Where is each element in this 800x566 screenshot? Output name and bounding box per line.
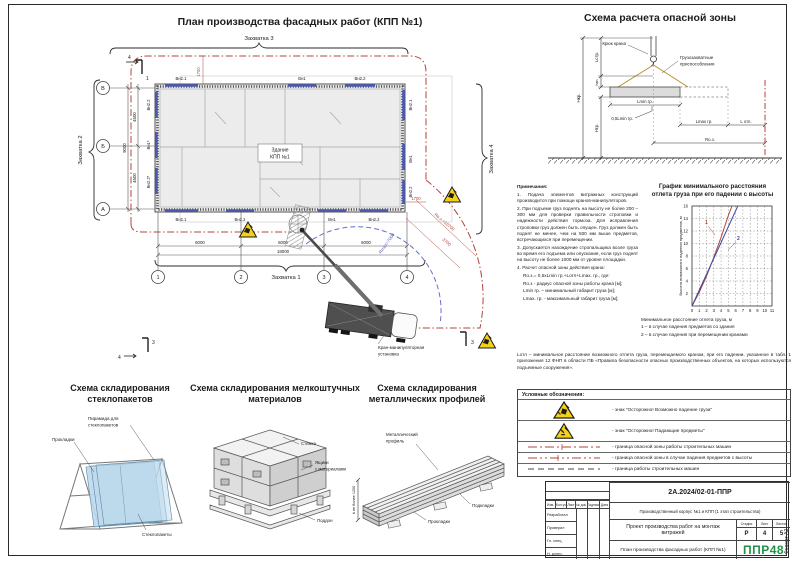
crane-label-1: Кран-манипуляторная [378,345,425,350]
machine-work-boundary-line-symbol [518,465,610,473]
svg-text:6: 6 [686,266,689,271]
win-label: Вн1 [298,76,306,81]
legend-text: - граница работы строительных машин [610,467,790,472]
dim-4500a: 4500 [132,112,137,122]
win-label: Вн2.2* [146,175,151,188]
axis-letter: Б [101,144,105,150]
pyramid-label-1: Пирамида для [88,416,119,421]
company-logo: ППР48 [736,540,790,559]
notes-block: Примечания: 1. Подача элементов витражны… [517,184,638,304]
row-glspec: Гл. спец. [546,534,576,547]
graph-legend-2: 2 – в случае падения при перемещении кра… [641,332,793,338]
glass-storage-scheme: Пирамида для стеклопакетов Прокладки Сте… [50,412,190,547]
svg-text:2: 2 [705,308,708,313]
pyramid-label-2: стеклопакетов [88,423,119,428]
building: Здание КПП №1 [155,84,405,212]
svg-text:3: 3 [713,308,716,313]
dim-6000c: 6000 [361,240,371,245]
glass-panes-label: Стеклопакеты [142,532,172,537]
axis-number: 4 [405,275,408,281]
mark-3-bottom: 3 [152,340,155,346]
rigging-label-1: Грузозахватные [680,55,714,60]
boxes-label-1: Ящики [315,460,329,465]
supports-label: Подкладки [472,503,495,508]
axis-number: 2 [239,275,242,281]
building-label-2: КПП №1 [270,155,290,161]
warning-falling-load-icon [444,187,461,202]
zone4-label: Захватка 4 [489,144,495,174]
hook-leader [628,45,648,54]
legend-text: - знак "Осторожно! Падающие предметы" [610,429,790,434]
note-item: 2. При подъеме груз поднять на высоту не… [517,206,638,244]
legend-row: - граница опасной зоны в случае падения … [518,452,790,463]
note-item: 1. Подача элементов витражных конструкци… [517,192,638,205]
note-item: 4. Расчет опасной зоны действия крана: [517,265,638,271]
height-dim [356,478,360,522]
danger-zone-scheme: Нкр. Lстр. hзп. Нгр. Lmin гр. 0,5Lmin гр… [540,28,790,183]
axis-number: 3 [322,275,325,281]
boxes-label-2: с материалами [315,467,347,472]
profile-label-1: Металлический [386,432,418,437]
col-koluch: Кол.уч [555,500,566,508]
axis-letter: А [101,207,105,213]
pallet-label: Поддон [317,518,333,523]
svg-text:16: 16 [683,204,688,209]
danger-zone-machines-line-symbol [518,443,610,451]
dim-roz: Rо.з. [705,137,715,142]
svg-text:8: 8 [686,254,689,259]
win-label: Вн2.1 [408,99,413,111]
note-formula: Rо.з - радиус опасной зоны работы крана … [517,281,638,287]
sheets-label: Листов [772,519,790,527]
svg-text:8: 8 [749,308,752,313]
rigging-leader [662,61,678,73]
legend-text: - граница опасной зоны работы строительн… [610,445,790,450]
col-doc: № док. [575,500,587,508]
small-storage-title: Схема складирования мелкоштучных материа… [190,383,360,406]
sling-line [654,65,689,87]
sheet-value: 4 [756,527,772,540]
load-ghost [680,87,728,97]
curve-label-2: 2 [737,236,740,242]
win-label: Вн2.2 [355,76,367,81]
dim-hzp: hзп. [595,79,599,86]
site-plan: Захватка 3 Захватка 1 Захватка 2 Захватк… [30,32,520,382]
win-label: Вн2.1 [176,217,188,222]
load-block [610,87,680,97]
legend-row: - знак "Осторожно! Возможно падение груз… [518,399,790,420]
building-label-1: Здание [271,148,288,154]
small-materials-scheme: Стяжка Ящики с материалами Поддон [195,428,350,546]
axis-letter: В [101,86,105,92]
row-nkontr: Н. контр. [546,547,576,559]
svg-text:6: 6 [734,308,737,313]
object-name: Производственный корпус №1 и КПП (1 этап… [609,502,790,519]
dim-6000a: 6000 [195,240,205,245]
dim-1700-top: 1700 [196,67,201,77]
fall-distance-graph: 01234567891011246810121416 1 2 Высота во… [638,198,795,318]
sheet-name: План производства фасадных работ (КПП №1… [609,540,736,559]
lotl-note: Lотл – минимальное расстояние возможного… [517,352,791,371]
warning-falling-load-icon [240,222,257,237]
format-note: Формат А2 [784,529,790,554]
plot-area: 01234567891011246810121416 [683,204,775,313]
legend-heading: Условные обозначения: [518,390,790,399]
dim-lotl: L отл. [740,119,751,124]
dim-4500b: 4500 [132,173,137,183]
row-proveril: Проверил [546,521,576,534]
mark-4-top: 4 [128,55,131,61]
warning-falling-load-icon [479,333,496,348]
col-podpis: Подпись [587,500,599,508]
dim-9000: 9000 [122,143,127,153]
vertical-dims [581,36,603,160]
curve-label-1: 1 [705,220,708,226]
plan-title: План производства фасадных работ (КПП №1… [125,16,475,28]
win-label: Вн2.2 [235,217,247,222]
svg-text:9: 9 [756,308,759,313]
sheet-label: Лист [756,519,772,527]
dim-lmax: Lmax гр. [696,119,713,124]
spacers-label: Прокладки [52,437,75,442]
crane-radius-label: Rmax=7000 [378,232,396,255]
mark-3-right: 3 [471,340,474,346]
svg-text:4: 4 [686,279,689,284]
col-izm: Изм. [546,500,555,508]
note-formula: Rо.з.= 0,5xLmin гр.+Lотл+Lmax. гр., где: [517,273,638,279]
danger-zone-falling-line-symbol [518,454,610,462]
win-label: Вн1* [146,140,151,149]
dim-half-lmin: 0,5Lmin гр. [611,116,633,121]
mark-4-bottom: 4 [118,355,121,361]
zone1-label: Захватка 1 [271,275,300,281]
graph-xlabel: Минимальное расстояние отлета груза, м [641,317,793,323]
dim-1700-right: 1700 [411,196,421,201]
warning-falling-objects-icon [518,422,610,440]
dim-lstr: Lстр. [594,52,599,63]
col-list: Лист [566,500,575,508]
win-label: Вн2.2 [369,217,381,222]
mark-1-top: 1 [146,76,149,82]
metal-profiles-scheme: h не более 1200 Металлический профиль По… [346,418,510,545]
glass-storage-title: Схема складирования стеклопакетов [40,383,200,406]
project-name: Проект производства работ на монтаж витр… [609,519,736,540]
svg-text:10: 10 [683,241,688,246]
svg-text:5: 5 [727,308,730,313]
stage-label: Стадия [736,519,756,527]
legend-text: - граница опасной зоны в случае падения … [610,456,790,461]
projection-guides [610,65,728,143]
glass-panes [86,460,172,527]
graph-ylabel: Высота возможного падения предметов, м [678,216,683,295]
win-label: Вн1 [328,217,336,222]
metal-storage-title: Схема складирования металлических профил… [352,383,502,406]
win-label: Вн2.1 [176,76,188,81]
dim-3700: 3700 [441,237,452,247]
axis-number: 1 [156,275,159,281]
danger-scheme-title: Схема расчета опасной зоны [540,12,780,24]
dim-hkr: Нкр. [576,94,581,103]
svg-text:4: 4 [720,308,723,313]
title-block: Изм. Кол.уч Лист № док. Подпись Дата Раз… [545,481,789,558]
note-formula: Lmin гр. – минимальный габарит груза [м]… [517,288,638,294]
legend-row: - граница работы строительных машин [518,463,790,474]
dim-lmin: Lmin гр. [637,99,653,104]
drawing-sheet: План производства фасадных работ (КПП №1… [0,0,800,566]
win-label: Вн1 [408,155,413,163]
svg-text:2: 2 [686,291,689,296]
height-label: h не более 1200 [352,486,356,515]
spacers-label: Прокладки [428,519,450,524]
svg-text:12: 12 [683,229,688,234]
graph-title-line1: График минимального расстояния [630,183,795,191]
svg-text:7: 7 [742,308,745,313]
crane-hook-assembly [651,36,657,66]
doc-number: 2А.2024/02-01-ППР [609,482,790,502]
svg-text:11: 11 [770,308,775,313]
dim-18000: 18000 [277,249,290,254]
stage-value: Р [736,527,756,540]
svg-text:14: 14 [683,216,688,221]
zone3-label: Захватка 3 [244,36,273,42]
note-item: 3. Допускается нахождение стропальщика в… [517,245,638,264]
win-label: Вн2.2 [146,99,151,111]
horizontal-dims [608,103,767,145]
svg-text:0: 0 [691,308,694,313]
zone2-label: Захватка 2 [78,135,84,164]
legend-row: - граница опасной зоны работы строительн… [518,441,790,452]
svg-text:1: 1 [698,308,701,313]
profile-label-2: профиль [386,439,405,444]
graph-caption: Минимальное расстояние отлета груза, м 1… [641,317,793,339]
warning-falling-load-icon [518,400,610,420]
row-razrabotal: Разработал [546,508,576,521]
legend-box: Условные обозначения: - знак "Осторожно!… [517,389,791,477]
hook-label: Крюк крана [602,41,626,46]
dim-hgr: Нгр. [594,124,599,133]
ground-hatch [548,159,782,164]
legend-row: - знак "Осторожно! Падающие предметы" [518,420,790,441]
col-data: Дата [599,500,609,508]
notes-heading: Примечания: [517,184,638,190]
svg-text:10: 10 [762,308,767,313]
note-formula: Lmax. гр. - максимальный габарит груза [… [517,296,638,302]
tie-label: Стяжка [301,441,317,446]
rigging-label-2: приспособления [680,62,715,67]
graph-legend-1: 1 – в случае падения предметов со здания [641,324,793,330]
crane-label-2: установка [378,352,399,357]
legend-text: - знак "Осторожно! Возможно падение груз… [610,408,790,413]
